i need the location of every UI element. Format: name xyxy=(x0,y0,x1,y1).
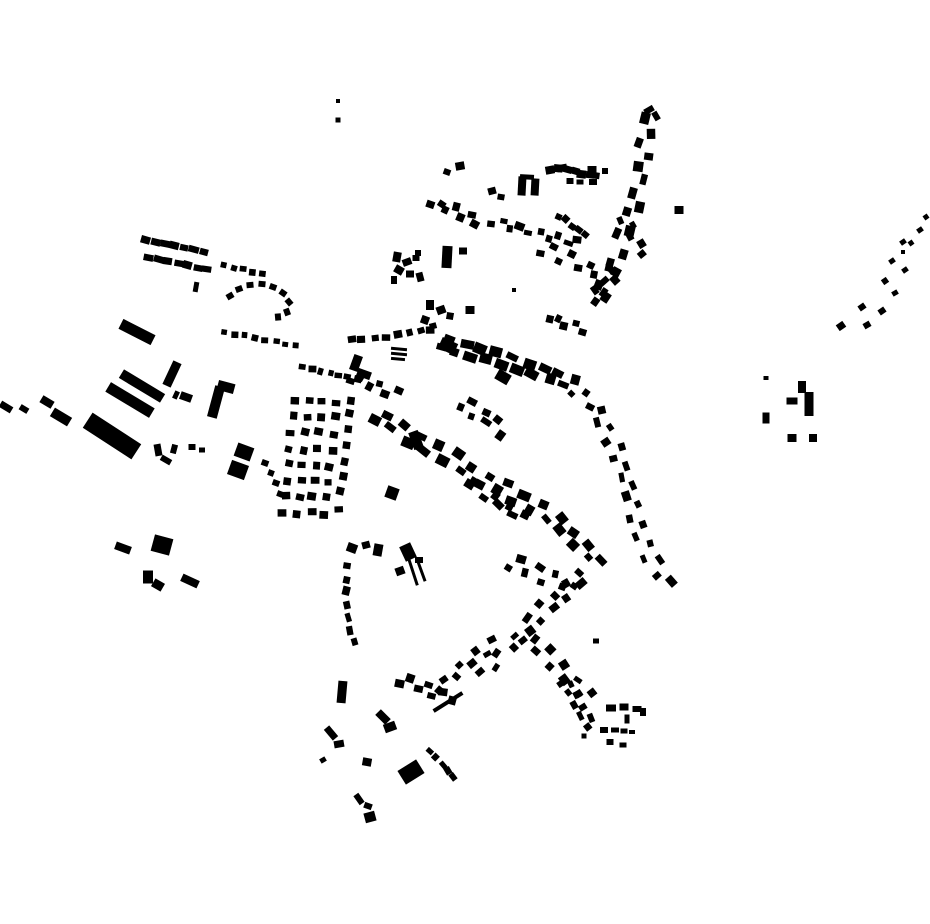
building xyxy=(329,447,338,455)
building xyxy=(382,334,391,341)
building xyxy=(426,300,434,310)
map-canvas xyxy=(0,0,930,924)
building xyxy=(506,225,513,233)
building xyxy=(593,639,599,644)
building xyxy=(787,398,798,405)
building xyxy=(621,729,628,734)
building xyxy=(809,434,817,442)
building xyxy=(239,266,246,272)
building xyxy=(805,392,814,416)
building xyxy=(282,492,291,500)
building xyxy=(572,236,582,244)
building xyxy=(371,335,379,342)
building xyxy=(273,338,280,344)
building xyxy=(644,152,654,160)
building xyxy=(286,430,295,437)
building xyxy=(282,341,288,347)
building xyxy=(275,313,282,320)
building xyxy=(497,193,505,200)
building xyxy=(304,414,312,421)
building xyxy=(764,376,769,380)
building xyxy=(589,179,597,185)
building xyxy=(343,562,351,569)
building xyxy=(625,715,630,724)
building xyxy=(347,335,356,343)
building xyxy=(573,264,582,272)
building xyxy=(487,220,495,227)
building xyxy=(342,441,350,449)
building xyxy=(319,511,328,519)
building xyxy=(446,312,454,320)
building xyxy=(311,477,320,484)
building xyxy=(339,472,348,481)
building xyxy=(392,251,402,262)
building xyxy=(763,413,770,424)
building xyxy=(290,411,298,419)
building xyxy=(567,178,574,184)
building xyxy=(582,734,587,739)
building xyxy=(313,462,320,470)
building xyxy=(577,180,584,185)
building xyxy=(537,228,545,236)
building xyxy=(336,118,341,123)
building xyxy=(246,282,253,289)
building xyxy=(512,288,516,292)
building xyxy=(344,425,352,433)
building xyxy=(290,397,299,405)
building xyxy=(675,206,684,214)
building xyxy=(602,168,608,174)
building xyxy=(438,688,448,697)
building xyxy=(336,99,340,103)
building xyxy=(163,257,173,265)
building xyxy=(413,255,420,261)
map-background xyxy=(0,0,930,924)
building xyxy=(647,129,656,139)
building xyxy=(221,329,227,335)
building xyxy=(391,276,397,284)
building xyxy=(306,397,314,404)
building xyxy=(241,332,247,338)
building xyxy=(590,270,598,279)
building xyxy=(298,477,307,484)
building xyxy=(620,704,629,711)
building xyxy=(520,174,534,180)
building xyxy=(298,364,306,370)
building xyxy=(362,757,372,766)
building xyxy=(297,462,305,468)
building xyxy=(357,336,365,343)
building xyxy=(308,508,317,515)
building xyxy=(606,705,616,712)
building xyxy=(337,681,348,704)
building xyxy=(455,161,465,170)
building xyxy=(531,178,540,195)
building xyxy=(292,342,298,348)
building xyxy=(611,728,619,733)
building xyxy=(393,330,403,339)
building xyxy=(466,306,475,314)
building xyxy=(331,412,341,421)
building xyxy=(334,506,343,512)
building xyxy=(347,396,355,405)
building xyxy=(143,571,153,584)
building xyxy=(620,743,627,748)
building xyxy=(220,261,227,268)
building xyxy=(901,250,905,254)
building xyxy=(406,271,414,278)
building xyxy=(629,730,635,734)
building xyxy=(325,479,332,485)
building xyxy=(231,331,238,338)
buildings-svg xyxy=(0,0,930,924)
building xyxy=(640,708,646,716)
building xyxy=(307,492,317,501)
building xyxy=(441,246,452,268)
building xyxy=(329,431,338,439)
building xyxy=(308,366,316,373)
building xyxy=(788,434,797,442)
building xyxy=(633,161,644,172)
building xyxy=(261,337,268,343)
building xyxy=(199,448,205,453)
building xyxy=(249,269,256,276)
building xyxy=(278,509,287,516)
building xyxy=(798,381,806,393)
building xyxy=(545,165,555,174)
building xyxy=(292,510,300,518)
building xyxy=(600,727,608,733)
building xyxy=(459,248,467,255)
building xyxy=(318,398,326,404)
building xyxy=(332,400,341,407)
building xyxy=(607,739,614,745)
building xyxy=(313,445,321,452)
building xyxy=(322,493,331,501)
building xyxy=(426,326,435,333)
building xyxy=(592,172,600,179)
building xyxy=(317,413,325,421)
building xyxy=(334,372,342,378)
building xyxy=(576,170,586,179)
building xyxy=(283,477,291,485)
building xyxy=(554,164,563,173)
building xyxy=(189,444,196,450)
building xyxy=(258,281,265,288)
building xyxy=(259,270,266,277)
